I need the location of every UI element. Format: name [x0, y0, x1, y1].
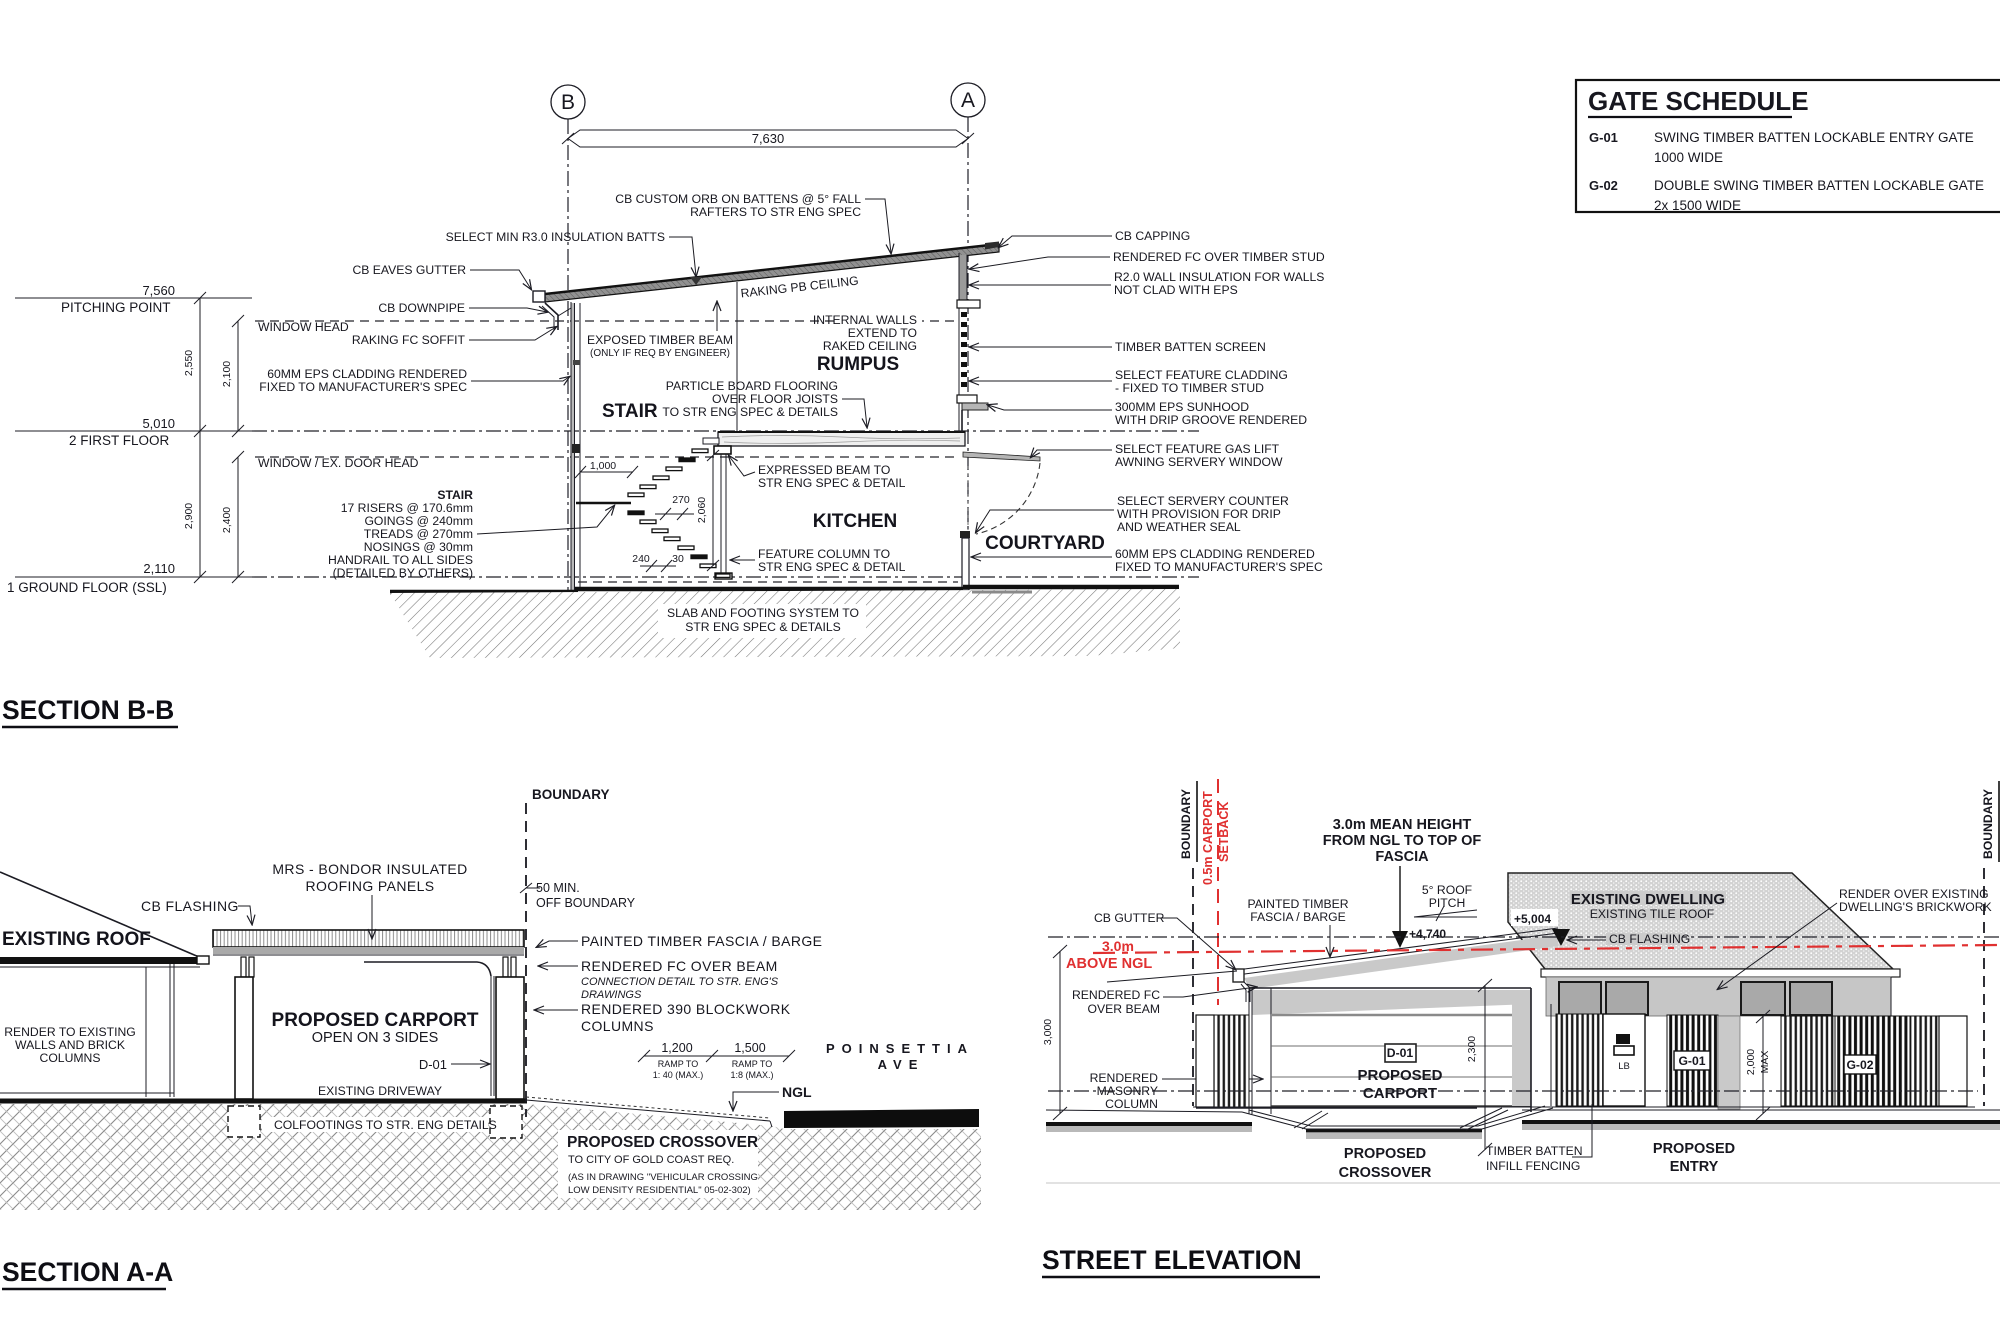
svg-text:2,300: 2,300: [1466, 1036, 1478, 1062]
svg-text:POINSETTIA: POINSETTIA: [826, 1041, 974, 1056]
svg-text:1:8 (MAX.): 1:8 (MAX.): [730, 1070, 773, 1080]
svg-text:RAFTERS TO STR ENG SPEC: RAFTERS TO STR ENG SPEC: [690, 205, 861, 219]
svg-text:INTERNAL WALLS: INTERNAL WALLS: [813, 313, 917, 327]
svg-text:7,560: 7,560: [142, 283, 175, 298]
svg-text:3,000: 3,000: [1042, 1019, 1054, 1045]
svg-text:R2.0 WALL INSULATION FOR WALLS: R2.0 WALL INSULATION FOR WALLS: [1114, 270, 1324, 284]
svg-text:DWELLING'S BRICKWORK: DWELLING'S BRICKWORK: [1839, 900, 1992, 914]
svg-text:270: 270: [672, 494, 690, 506]
svg-text:(ONLY IF REQ BY ENGINEER): (ONLY IF REQ BY ENGINEER): [590, 348, 730, 359]
svg-text:G-01: G-01: [1678, 1054, 1705, 1068]
svg-text:- FIXED TO TIMBER STUD: - FIXED TO TIMBER STUD: [1115, 381, 1264, 395]
svg-text:7,630: 7,630: [752, 131, 785, 146]
svg-text:STR ENG SPEC & DETAIL: STR ENG SPEC & DETAIL: [758, 560, 906, 574]
svg-text:PAINTED TIMBER FASCIA / BARGE: PAINTED TIMBER FASCIA / BARGE: [581, 933, 822, 949]
svg-text:BOUNDARY: BOUNDARY: [1179, 789, 1193, 859]
svg-text:GOINGS @ 240mm: GOINGS @ 240mm: [364, 514, 473, 528]
svg-text:PROPOSED: PROPOSED: [1344, 1146, 1426, 1162]
svg-text:1,200: 1,200: [661, 1041, 692, 1055]
svg-text:AWNING SERVERY WINDOW: AWNING SERVERY WINDOW: [1115, 455, 1283, 469]
svg-text:1: 40 (MAX.): 1: 40 (MAX.): [653, 1070, 704, 1080]
svg-text:2,550: 2,550: [183, 350, 195, 376]
svg-text:TIMBER BATTEN: TIMBER BATTEN: [1486, 1144, 1583, 1158]
svg-text:CB FLASHING: CB FLASHING: [1609, 932, 1690, 946]
svg-text:D-01: D-01: [419, 1057, 447, 1072]
svg-text:TO STR ENG SPEC & DETAILS: TO STR ENG SPEC & DETAILS: [662, 405, 838, 419]
svg-text:COLFOOTINGS TO STR. ENG DETAIL: COLFOOTINGS TO STR. ENG DETAILS: [274, 1118, 497, 1132]
svg-text:FIXED TO MANUFACTURER'S SPEC: FIXED TO MANUFACTURER'S SPEC: [1115, 560, 1323, 574]
svg-text:+5,004: +5,004: [1514, 912, 1551, 926]
svg-text:PITCHING POINT: PITCHING POINT: [61, 300, 171, 315]
svg-text:RENDERED FC OVER TIMBER STUD: RENDERED FC OVER TIMBER STUD: [1113, 250, 1325, 264]
svg-text:CB GUTTER: CB GUTTER: [1094, 911, 1165, 925]
svg-text:LB: LB: [1618, 1061, 1630, 1072]
svg-text:FASCIA / BARGE: FASCIA / BARGE: [1250, 910, 1346, 924]
svg-text:AND WEATHER SEAL: AND WEATHER SEAL: [1117, 520, 1241, 534]
svg-text:D-01: D-01: [1387, 1046, 1414, 1060]
svg-text:AVE: AVE: [878, 1057, 925, 1072]
svg-text:FEATURE COLUMN TO: FEATURE COLUMN TO: [758, 547, 890, 561]
svg-text:SELECT SERVERY COUNTER: SELECT SERVERY COUNTER: [1117, 494, 1289, 508]
svg-text:SECTION A-A: SECTION A-A: [2, 1257, 173, 1287]
svg-text:0.5m CARPORT: 0.5m CARPORT: [1201, 791, 1215, 885]
svg-text:5° ROOF: 5° ROOF: [1422, 883, 1472, 897]
svg-text:RAKING FC SOFFIT: RAKING FC SOFFIT: [352, 333, 466, 347]
svg-text:PROPOSED: PROPOSED: [1653, 1141, 1735, 1157]
svg-text:STREET ELEVATION: STREET ELEVATION: [1042, 1245, 1302, 1275]
svg-text:EXPOSED TIMBER BEAM: EXPOSED TIMBER BEAM: [587, 333, 733, 347]
svg-text:2,060: 2,060: [696, 497, 708, 523]
svg-text:MAX: MAX: [1759, 1051, 1771, 1074]
svg-text:EXISTING ROOF: EXISTING ROOF: [2, 929, 151, 950]
svg-text:1 GROUND FLOOR (SSL): 1 GROUND FLOOR (SSL): [7, 580, 167, 595]
svg-text:MRS - BONDOR INSULATED: MRS - BONDOR INSULATED: [272, 861, 467, 877]
svg-text:LOW DENSITY RESIDENTIAL" 05-02: LOW DENSITY RESIDENTIAL" 05-02-302): [568, 1185, 751, 1196]
svg-text:OFF BOUNDARY: OFF BOUNDARY: [536, 896, 636, 910]
svg-text:2,900: 2,900: [183, 503, 195, 529]
svg-text:RENDER OVER EXISTING: RENDER OVER EXISTING: [1839, 887, 1989, 901]
svg-text:CB DOWNPIPE: CB DOWNPIPE: [378, 301, 465, 315]
svg-text:WITH PROVISION FOR DRIP: WITH PROVISION FOR DRIP: [1117, 507, 1281, 521]
svg-text:2,000: 2,000: [1745, 1049, 1757, 1075]
svg-text:WINDOW / EX. DOOR HEAD: WINDOW / EX. DOOR HEAD: [258, 456, 419, 470]
svg-text:240: 240: [632, 553, 650, 565]
svg-text:BOUNDARY: BOUNDARY: [532, 787, 610, 802]
svg-text:FROM NGL TO TOP OF: FROM NGL TO TOP OF: [1323, 833, 1482, 849]
svg-text:RAKED CEILING: RAKED CEILING: [823, 339, 917, 353]
svg-text:B: B: [561, 91, 575, 114]
svg-text:NOT CLAD WITH EPS: NOT CLAD WITH EPS: [1114, 283, 1238, 297]
svg-text:(DETAILED BY OTHERS): (DETAILED BY OTHERS): [333, 566, 473, 580]
svg-text:PAINTED TIMBER: PAINTED TIMBER: [1247, 897, 1348, 911]
svg-text:SECTION B-B: SECTION B-B: [2, 695, 174, 725]
svg-text:+4,740: +4,740: [1409, 927, 1446, 941]
svg-text:WALLS AND BRICK: WALLS AND BRICK: [15, 1038, 125, 1052]
svg-text:ABOVE NGL: ABOVE NGL: [1066, 956, 1152, 972]
svg-text:WINDOW HEAD: WINDOW HEAD: [258, 320, 349, 334]
svg-text:2,400: 2,400: [221, 507, 233, 533]
svg-text:3.0m MEAN HEIGHT: 3.0m MEAN HEIGHT: [1333, 817, 1472, 833]
svg-text:COLUMNS: COLUMNS: [40, 1051, 101, 1065]
svg-text:PITCH: PITCH: [1429, 896, 1466, 910]
svg-text:COLUMNS: COLUMNS: [581, 1018, 654, 1034]
svg-text:300MM EPS SUNHOOD: 300MM EPS SUNHOOD: [1115, 400, 1249, 414]
svg-text:BOUNDARY: BOUNDARY: [1981, 789, 1995, 859]
svg-text:NGL: NGL: [782, 1084, 812, 1100]
svg-text:OPEN ON 3 SIDES: OPEN ON 3 SIDES: [312, 1030, 439, 1046]
svg-text:FASCIA: FASCIA: [1375, 849, 1429, 865]
svg-text:5,010: 5,010: [142, 416, 175, 431]
svg-text:CROSSOVER: CROSSOVER: [1339, 1165, 1432, 1181]
svg-text:TO CITY OF GOLD COAST REQ.: TO CITY OF GOLD COAST REQ.: [568, 1154, 734, 1166]
svg-text:EXISTING TILE ROOF: EXISTING TILE ROOF: [1590, 907, 1714, 921]
svg-text:SELECT FEATURE CLADDING: SELECT FEATURE CLADDING: [1115, 368, 1288, 382]
svg-text:STR ENG SPEC & DETAIL: STR ENG SPEC & DETAIL: [758, 476, 906, 490]
svg-text:KITCHEN: KITCHEN: [813, 511, 897, 532]
svg-text:RENDER TO EXISTING: RENDER TO EXISTING: [4, 1025, 136, 1039]
svg-text:PARTICLE BOARD FLOORING: PARTICLE BOARD FLOORING: [666, 379, 838, 393]
svg-text:3.0m: 3.0m: [1102, 938, 1134, 954]
svg-text:CB FLASHING: CB FLASHING: [141, 898, 239, 914]
svg-text:RENDERED FC OVER BEAM: RENDERED FC OVER BEAM: [581, 958, 778, 974]
svg-text:SETBACK: SETBACK: [1217, 802, 1231, 862]
svg-text:30: 30: [672, 553, 684, 565]
svg-text:RENDERED 390 BLOCKWORK: RENDERED 390 BLOCKWORK: [581, 1001, 791, 1017]
svg-text:1,500: 1,500: [734, 1041, 765, 1055]
svg-text:RUMPUS: RUMPUS: [817, 354, 899, 375]
svg-text:2,110: 2,110: [143, 561, 175, 576]
svg-text:COLUMN: COLUMN: [1105, 1097, 1158, 1111]
svg-text:STR ENG SPEC & DETAILS: STR ENG SPEC & DETAILS: [685, 620, 841, 634]
svg-text:60MM EPS CLADDING RENDERED: 60MM EPS CLADDING RENDERED: [267, 367, 467, 381]
svg-text:WITH DRIP GROOVE RENDERED: WITH DRIP GROOVE RENDERED: [1115, 413, 1307, 427]
svg-text:EXISTING DWELLING: EXISTING DWELLING: [1571, 891, 1725, 908]
svg-text:1000 WIDE: 1000 WIDE: [1654, 150, 1723, 165]
svg-text:CB CAPPING: CB CAPPING: [1115, 229, 1190, 243]
svg-text:DRAWINGS: DRAWINGS: [581, 989, 642, 1001]
svg-text:HANDRAIL TO ALL SIDES: HANDRAIL TO ALL SIDES: [328, 553, 473, 567]
svg-text:ENTRY: ENTRY: [1670, 1159, 1719, 1175]
svg-text:G-02: G-02: [1589, 178, 1618, 193]
svg-text:PROPOSED: PROPOSED: [1357, 1067, 1442, 1084]
svg-text:TREADS @ 270mm: TREADS @ 270mm: [364, 527, 473, 541]
svg-text:A: A: [961, 89, 975, 112]
svg-text:2x 1500 WIDE: 2x 1500 WIDE: [1654, 198, 1741, 213]
svg-text:(AS IN DRAWING "VEHICULAR CROS: (AS IN DRAWING "VEHICULAR CROSSING: [568, 1172, 758, 1183]
svg-text:STAIR: STAIR: [602, 401, 658, 422]
svg-text:PROPOSED CROSSOVER: PROPOSED CROSSOVER: [567, 1134, 758, 1151]
svg-text:SELECT MIN R3.0 INSULATION BAT: SELECT MIN R3.0 INSULATION BATTS: [446, 230, 665, 244]
svg-text:SLAB AND FOOTING SYSTEM TO: SLAB AND FOOTING SYSTEM TO: [667, 606, 859, 620]
svg-text:50 MIN.: 50 MIN.: [536, 881, 580, 895]
svg-text:OVER BEAM: OVER BEAM: [1088, 1002, 1160, 1016]
svg-text:ROOFING PANELS: ROOFING PANELS: [305, 878, 434, 894]
svg-text:RAMP TO: RAMP TO: [732, 1059, 773, 1069]
svg-text:DOUBLE SWING TIMBER BATTEN LOC: DOUBLE SWING TIMBER BATTEN LOCKABLE GATE: [1654, 178, 1984, 193]
svg-text:STAIR: STAIR: [437, 488, 473, 502]
svg-text:NOSINGS @ 30mm: NOSINGS @ 30mm: [364, 540, 473, 554]
svg-text:CB EAVES GUTTER: CB EAVES GUTTER: [352, 263, 466, 277]
svg-text:G-01: G-01: [1589, 130, 1618, 145]
svg-text:60MM EPS CLADDING RENDERED: 60MM EPS CLADDING RENDERED: [1115, 547, 1315, 561]
svg-text:TIMBER BATTEN SCREEN: TIMBER BATTEN SCREEN: [1115, 340, 1266, 354]
svg-text:EXTEND TO: EXTEND TO: [848, 326, 917, 340]
svg-text:17 RISERS @ 170.6mm: 17 RISERS @ 170.6mm: [341, 501, 473, 515]
svg-text:GATE SCHEDULE: GATE SCHEDULE: [1588, 86, 1809, 116]
svg-text:PROPOSED CARPORT: PROPOSED CARPORT: [272, 1010, 479, 1031]
svg-text:EXISTING DRIVEWAY: EXISTING DRIVEWAY: [318, 1084, 442, 1098]
svg-text:RAMP TO: RAMP TO: [658, 1059, 699, 1069]
svg-text:2,100: 2,100: [221, 361, 233, 387]
svg-text:COURTYARD: COURTYARD: [985, 533, 1105, 554]
svg-text:G-02: G-02: [1846, 1058, 1873, 1072]
svg-text:FIXED TO MANUFACTURER'S SPEC: FIXED TO MANUFACTURER'S SPEC: [259, 380, 467, 394]
svg-text:CONNECTION DETAIL TO STR. ENG': CONNECTION DETAIL TO STR. ENG'S: [581, 976, 779, 988]
svg-text:CARPORT: CARPORT: [1363, 1085, 1437, 1102]
svg-text:2 FIRST FLOOR: 2 FIRST FLOOR: [69, 433, 170, 448]
svg-text:RENDERED FC: RENDERED FC: [1072, 988, 1160, 1002]
svg-text:1,000: 1,000: [590, 460, 616, 472]
svg-text:INFILL FENCING: INFILL FENCING: [1486, 1159, 1580, 1173]
svg-text:EXPRESSED BEAM TO: EXPRESSED BEAM TO: [758, 463, 890, 477]
svg-text:SELECT FEATURE GAS LIFT: SELECT FEATURE GAS LIFT: [1115, 442, 1280, 456]
svg-text:SWING TIMBER BATTEN LOCKABLE E: SWING TIMBER BATTEN LOCKABLE ENTRY GATE: [1654, 130, 1974, 145]
svg-text:RENDERED: RENDERED: [1090, 1071, 1159, 1085]
svg-text:CB CUSTOM ORB ON BATTENS @ 5°: CB CUSTOM ORB ON BATTENS @ 5° FALL: [615, 192, 861, 206]
svg-text:OVER FLOOR JOISTS: OVER FLOOR JOISTS: [712, 392, 838, 406]
